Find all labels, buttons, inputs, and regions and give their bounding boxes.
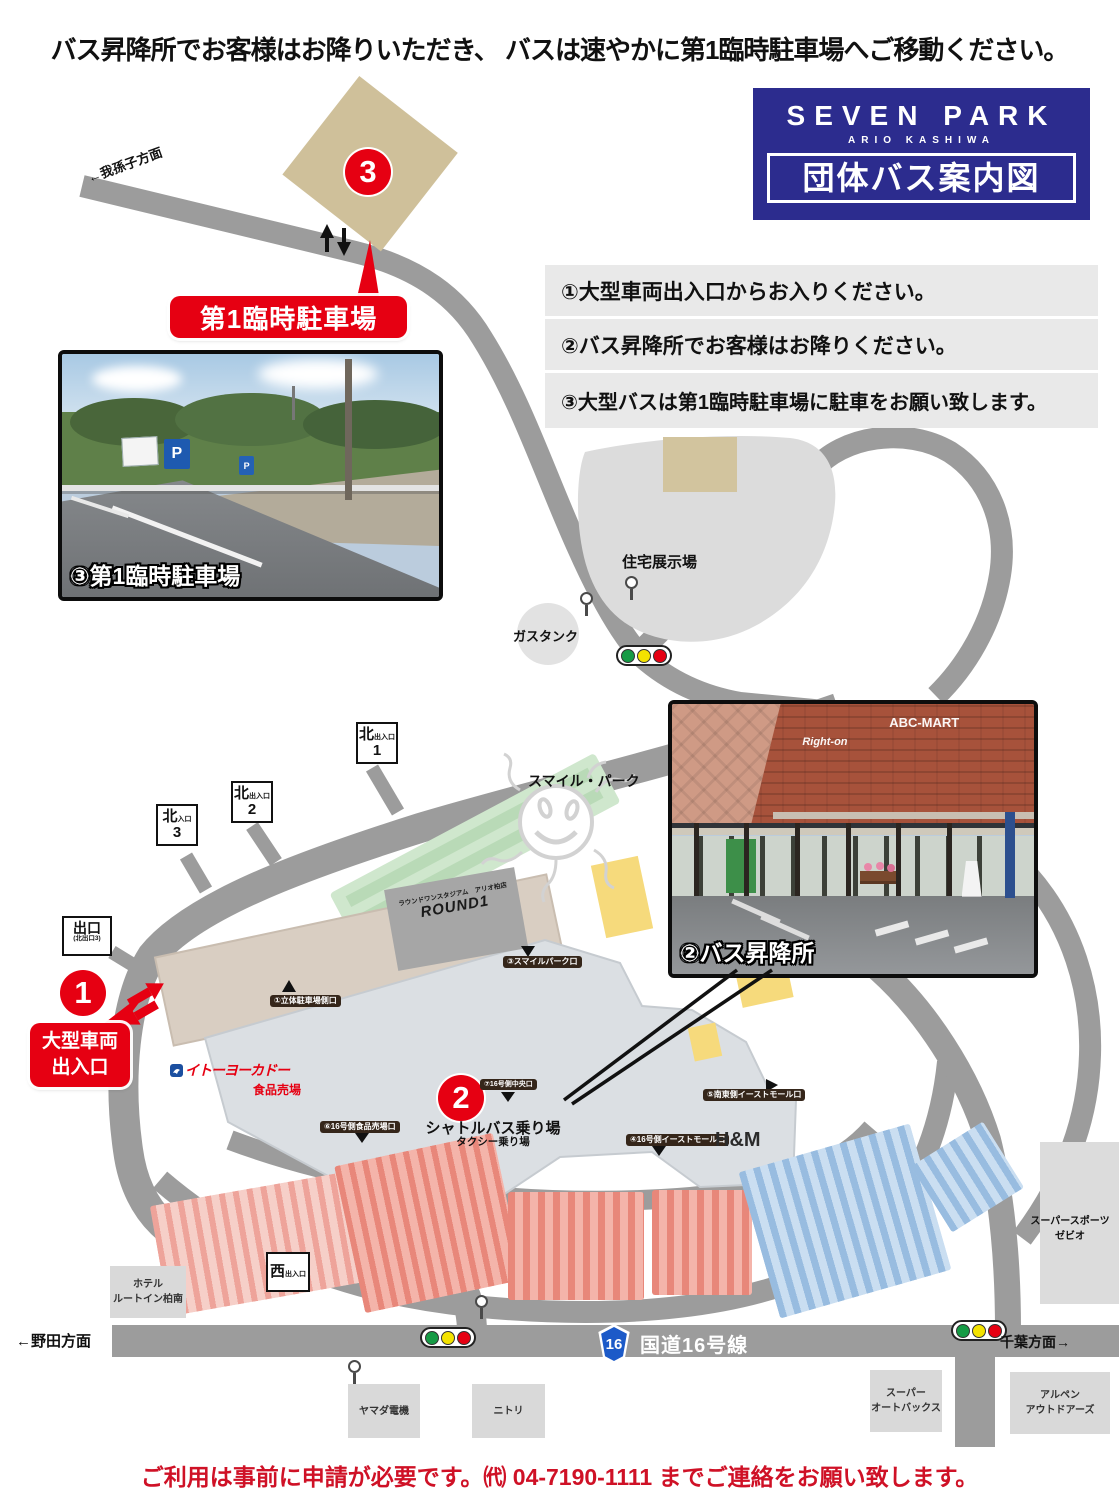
photo-green-poster [726,839,756,893]
gate-label-big: 西 [270,1264,285,1279]
parking-lot-area [508,1192,644,1300]
label-hotel: ホテル ルートイン柏南 [110,1266,186,1318]
small-gate-food-hall: ⑥16号側食品売場口 [320,1121,400,1133]
sign-abc-mart: ABC-MART [889,715,959,730]
parking-sign-letter: P [171,445,182,463]
photo-caption: ③第1臨時駐車場 [70,557,240,591]
small-gate-smile-park: ③スマイルパーク口 [503,956,582,968]
photo-parking-lot: P P ③第1臨時駐車場 [58,350,443,601]
label-food-hall: 食品売場 [253,1081,301,1098]
gate-west: 西出入口 [266,1252,310,1292]
logo-subtitle: ARIO KASHIWA [753,135,1090,146]
utility-pole [345,359,352,500]
label-nitori: ニトリ [472,1384,545,1438]
gate-label-small: 出入口 [285,1271,306,1278]
photo-mortar-band [773,812,1034,819]
sign-right-on: Right-on [802,736,847,748]
street-light-icon [580,592,593,616]
ito-yokado-dove-icon [170,1064,183,1077]
ito-yokado-logo: イトーヨーカドー [170,1060,289,1080]
notice-item: ①大型車両出入口からお入りください。 [545,265,1098,319]
parking-sign-letter: P [244,461,250,471]
notice-box: ①大型車両出入口からお入りください。 ②バス昇降所でお客様はお降りください。 ③… [545,265,1098,428]
gate-label-small: 出入口 [249,793,270,800]
flower-planter [860,871,896,884]
notice-item: ②バス昇降所でお客様はお降りください。 [545,319,1098,373]
parking-sign: P [164,439,190,469]
gate-number: 2 [233,801,271,819]
label-gastank: ガスタンク [513,626,578,645]
photo-caption: ②バス昇降所 [680,934,814,968]
marker-1: 1 [60,970,106,1016]
photo-sign-white [122,436,159,467]
label-hm: H&M [715,1129,761,1152]
street-light-icon [475,1295,488,1319]
label-route16: 国道16号線 [640,1329,748,1358]
gate-label-big: 北 [359,727,374,742]
gate-label-small: 入口 [178,816,192,823]
street-lamp [292,386,295,420]
bus-guide-map: P P ③第1臨時駐車場 Right-on ABC-MART ②バス昇降所 [0,0,1119,1500]
gate-label-small: 出入口 [374,734,395,741]
direction-noda: ←野田方面 [16,1330,91,1351]
street-light-icon [348,1360,361,1384]
gate-north-3: 北入口 3 [156,804,198,846]
page-title: バス昇降所でお客様はお降りいただき、 バスは速やかに第1臨時駐車場へご移動くださ… [0,30,1119,67]
marker-2: 2 [438,1075,484,1121]
traffic-light-icon [951,1320,1007,1341]
canopy-post [744,823,749,904]
gate-label-big: 北 [234,786,249,801]
route16-number: 16 [606,1336,623,1353]
gate-label-big: 北 [162,809,177,824]
cloud [258,359,378,389]
cloud [92,366,182,392]
marker-3: 3 [345,149,391,195]
photo-guardrail [62,485,439,491]
footer-notice: ご利用は事前に申請が必要です。㈹ 04-7190-1111 までご連絡をお願い致… [0,1458,1119,1492]
marker-number: 2 [452,1080,469,1116]
canopy-post [694,823,699,904]
gate-number: 1 [358,742,396,760]
logo-brand: SEVEN PARK [753,88,1090,132]
gate-north-1: 北出入口 1 [356,722,398,764]
canopy-post [795,823,800,904]
small-gate-route16-east-mall: ④16号側イーストモール口 [626,1134,729,1146]
store-sign-text: ABC-MART [889,715,959,730]
small-gate-parking-structure: ①立体駐車場側口 [270,995,341,1007]
photo-canopy-fascia [672,828,1034,835]
large-vehicle-gate-badge: 大型車両 出入口 [30,1023,130,1087]
store-sign-text: Right-on [802,736,847,748]
label-alpen: アルペン アウトドアーズ [1010,1372,1110,1434]
photo-trees [303,400,443,449]
direction-chiba: 千葉方面→ [1000,1332,1070,1352]
canopy-post [947,823,952,904]
label-housing: 住宅展示場 [622,551,697,572]
traffic-light-icon [616,645,672,666]
gate-exit-north-3: 出口 (北出口3) [62,916,112,956]
parking-sign: P [239,456,254,475]
photo-bus-stop: Right-on ABC-MART ②バス昇降所 [668,700,1038,978]
label-xebio: スーパースポーツ ゼビオ [1026,1214,1114,1244]
parking-lot-area [652,1190,752,1295]
small-gate-central: ⑦16号側中央口 [480,1079,537,1090]
gate-label-small: (北出口3) [64,936,110,943]
label-autobacs: スーパー オートバックス [870,1370,942,1432]
notice-item: ③大型バスは第1臨時駐車場に駐車をお願い致します。 [545,373,1098,427]
map-heading: 団体バス案内図 [767,153,1076,203]
street-light-icon [625,576,638,600]
gate-north-2: 北出入口 2 [231,781,273,823]
label-smile-park: スマイル・パーク [528,771,640,791]
blue-banner [1005,812,1015,898]
small-gate-southeast-east-mall: ⑤南東側イーストモール口 [703,1089,805,1101]
canopy-post [896,823,901,904]
ito-yokado-name: イトーヨーカドー [185,1060,289,1080]
traffic-light-icon [420,1327,476,1348]
marker-number: 3 [359,154,376,190]
label-yamada: ヤマダ電機 [348,1384,420,1438]
gate-badge-line1: 大型車両 [42,1029,118,1055]
gate-badge-line2: 出入口 [51,1055,108,1081]
marker-number: 1 [74,975,91,1011]
seven-park-logo: SEVEN PARK ARIO KASHIWA 団体バス案内図 [753,88,1090,220]
gate-number: 3 [158,824,196,842]
photo-canopy [672,823,1034,828]
temp-parking-badge: 第1臨時駐車場 [170,296,407,338]
canopy-post [846,823,851,904]
label-taxi: タクシー乗り場 [408,1134,578,1149]
